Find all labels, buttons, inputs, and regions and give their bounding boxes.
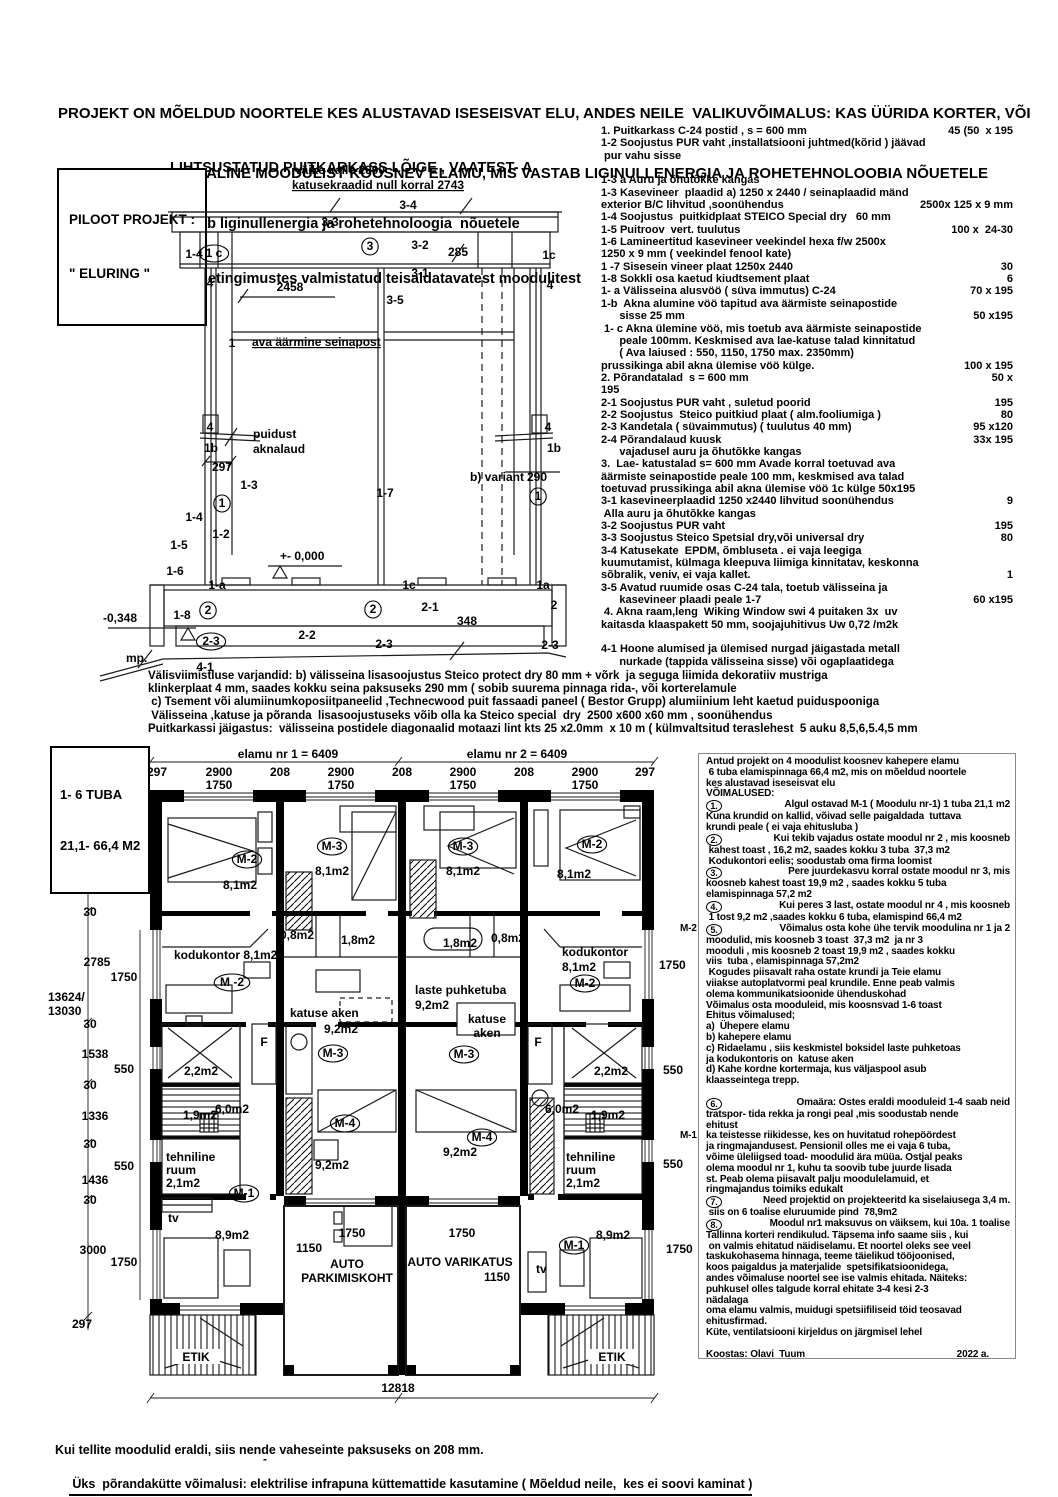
drawing-label: 4 <box>545 420 552 434</box>
drawing-label: väike kalle 2900 <box>295 163 385 177</box>
drawing-label: F <box>260 1035 267 1049</box>
text-line: vajadusel auru ja õhutõkke kangas <box>601 446 1013 458</box>
text-line: Koostas: Olavi Tuum2022 a. <box>706 1350 1010 1361</box>
drawing-label: AUTO VARIKATUS <box>407 1255 512 1269</box>
drawing-label: 1750 <box>449 1226 476 1240</box>
drawing-label: 1b <box>547 441 561 455</box>
drawing-label: M-3 <box>453 839 474 853</box>
drawing-label: 9,2m2 <box>324 1022 358 1036</box>
drawing-label: 290 <box>527 470 547 484</box>
text-line: 1-2 Soojustus PUR vaht ,installatsiooni … <box>601 137 1013 149</box>
text-line: 3-1 kasevineerplaadid 1250 x2440 lihvitu… <box>601 495 1013 507</box>
drawing-label: 2,1m2 <box>566 1176 600 1190</box>
drawing-label: laste puhketuba <box>415 983 507 997</box>
text-line: moodulid, mis koosneb 3 toast 37,3 m2 ja… <box>706 936 1010 947</box>
text-line: 2-4 Põrandalaud kuusk33x 195 <box>601 434 1013 446</box>
drawing-label: mp. <box>126 651 147 665</box>
drawing-label: 1 <box>535 489 542 503</box>
text-line: 3. Lae- katustalad s= 600 mm Avade korra… <box>601 458 1013 470</box>
drawing-label: 1750 <box>572 778 599 792</box>
drawing-label: 4 <box>547 278 554 292</box>
drawing-label: 1750 <box>111 970 138 984</box>
plan-title-box: 1- 6 TUBA 21,1- 66,4 M2 <box>50 746 150 894</box>
drawing-label: 2900 <box>572 765 599 779</box>
drawing-label: 3-2 <box>411 238 429 252</box>
drawing-label: 2-3 <box>375 637 393 651</box>
drawing-label: 297 <box>212 460 232 474</box>
drawing-label: 9,2m2 <box>315 1158 349 1172</box>
text-line: 2.Kui tekib vajadus ostate moodul nr 2 ,… <box>706 834 1010 846</box>
text-line: 1-b Akna alumine vöö tapitud ava äärmist… <box>601 298 1013 310</box>
text-line: 3-2 Soojustus PUR vaht195 <box>601 520 1013 532</box>
drawing-label: 30 <box>83 1137 97 1151</box>
drawing-label: 1c <box>402 578 416 592</box>
text-line: 1- a Välisseina alusvöö ( süva immutus) … <box>601 285 1013 297</box>
drawing-label: M-2 <box>237 852 258 866</box>
text-line: pur vahu sisse <box>601 150 1013 162</box>
text-line: 1-4 Soojustus puitkidplaat STEICO Specia… <box>601 211 1013 223</box>
drawing-label: 285 <box>448 245 468 259</box>
drawing-label: 6,0m2 <box>545 1102 579 1116</box>
text-line: toetuvad prussikinga abil akna ülemise v… <box>601 483 1013 495</box>
drawing-label: 1,9m2 <box>591 1108 625 1122</box>
drawing-label: +- 0,000 <box>280 549 325 563</box>
text-line: c) Tsement või alumiinumkoposiitpaneelid… <box>148 696 1038 709</box>
drawing-label: 3-4 <box>399 198 417 212</box>
project-sheet: PROJEKT ON MÕELDUD NOORTELE KES ALUSTAVA… <box>0 0 1058 1497</box>
drawing-label: 550 <box>663 1063 683 1077</box>
text-line: 6.Omaära: Ostes eraldi mooduleid 1-4 saa… <box>706 1098 1010 1110</box>
text-line: peale 100mm. Keskmised ava lae-katuse ta… <box>601 335 1013 347</box>
options-column: Antud projekt on 4 moodulist koosnev kah… <box>698 753 1016 1359</box>
cross-section-drawing: väike kalle 2900katusekraadid null korra… <box>95 160 570 675</box>
drawing-label: 3000 <box>80 1243 107 1257</box>
drawing-label: 1436 <box>82 1173 109 1187</box>
text-line: sõbralik, veniv, ei vaja kallet.1 <box>601 569 1013 581</box>
drawing-label: 2 <box>370 602 377 616</box>
footer-line-1: Kui tellite moodulid eraldi, siis nende … <box>55 1442 752 1459</box>
text-line: kaitasda klaaspakett 50 mm, soojajuhitiv… <box>601 619 1013 631</box>
drawing-label: 8,9m2 <box>596 1228 630 1242</box>
footer: Kui tellite moodulid eraldi, siis nende … <box>55 1408 752 1497</box>
drawing-label: 8,1m2 <box>562 960 596 974</box>
drawing-label: kodukontor <box>562 945 628 959</box>
text-line <box>601 631 1013 643</box>
drawing-label: 1-8 <box>173 608 191 622</box>
drawing-label: 2 <box>205 603 212 617</box>
drawing-label: 30 <box>83 905 97 919</box>
drawing-label: 3-3 <box>321 215 339 229</box>
text-line: 1-8 Sokkli osa kaetud kiudtsement plaat6 <box>601 273 1013 285</box>
text-line: äärmiste seinapostide peale 100 mm, kesk… <box>601 471 1013 483</box>
drawing-label: 1-4 <box>185 510 203 524</box>
drawing-label: 1750 <box>206 778 233 792</box>
drawing-label: aken <box>473 1026 500 1040</box>
drawing-label: 1 <box>219 496 226 510</box>
text-line: 3-3 Soojustus Steico Spetsial dry,või un… <box>601 532 1013 544</box>
drawing-label: M-3 <box>323 1046 344 1060</box>
footer-mark: - <box>263 1452 267 1466</box>
drawing-label: 13624/ <box>48 990 85 1004</box>
drawing-label: 2 <box>551 598 558 612</box>
drawing-label: 208 <box>514 765 534 779</box>
drawing-label: 30 <box>83 1193 97 1207</box>
drawing-label: 4 <box>207 276 214 290</box>
header-line-1: PROJEKT ON MÕELDUD NOORTELE KES ALUSTAVA… <box>58 104 1018 124</box>
text-line: 1 -7 Sisesein vineer plaat 1250x 244030 <box>601 261 1013 273</box>
drawing-label: 4 <box>207 420 214 434</box>
drawing-label: 1336 <box>82 1109 109 1123</box>
drawing-label: 1150 <box>484 1270 510 1284</box>
drawing-label: aknalaud <box>253 442 305 456</box>
drawing-label: 550 <box>663 1157 683 1171</box>
text-line: tratspor- tida rekka ja rongi peal ,mis … <box>706 1110 1010 1121</box>
drawing-label: 1c <box>542 248 556 262</box>
drawing-label: 30 <box>83 1078 97 1092</box>
drawing-label: M-2 <box>575 976 596 990</box>
text-line: 1250 x 9 mm ( veekindel fenool kate) <box>601 248 1013 260</box>
text-line: olema kommunikatsioonide ühenduskohad <box>706 990 1010 1001</box>
text-line: 2-1 Soojustus PUR vaht , suletud poorid1… <box>601 397 1013 409</box>
drawing-label: tv <box>168 1211 179 1225</box>
drawing-label: 1750 <box>328 778 355 792</box>
drawing-label: 1750 <box>339 1226 366 1240</box>
text-line: 3-4 Katusekate EPDM, õmbluseta . ei vaja… <box>601 545 1013 557</box>
drawing-label: kodukontor 8,1m2 <box>174 948 278 962</box>
drawing-label: 1150 <box>296 1241 322 1255</box>
drawing-label: 2,2m2 <box>184 1064 218 1078</box>
drawing-label: katuse <box>468 1012 506 1026</box>
drawing-label: 208 <box>270 765 290 779</box>
drawing-label: 8,9m2 <box>215 1228 249 1242</box>
drawing-label: 208 <box>392 765 412 779</box>
drawing-label: 30 <box>83 1017 97 1031</box>
drawing-label: 297 <box>635 765 655 779</box>
text-line: puhkusel olles talgude korral ehitate 3-… <box>706 1285 1010 1296</box>
drawing-label: 2900 <box>450 765 477 779</box>
drawing-label: 1-5 <box>170 538 188 552</box>
drawing-label: M-1 <box>564 1238 585 1252</box>
drawing-label: tv <box>536 1262 547 1276</box>
footer-line-2: Üks põrandakütte võimalusi: elektrilise … <box>69 1476 753 1496</box>
drawing-label: elamu nr 2 = 6409 <box>467 747 568 761</box>
drawing-label: 2900 <box>206 765 233 779</box>
drawing-label: 1-2 <box>212 527 230 541</box>
text-line: Välisseina ,katuse ja põranda lisasoojus… <box>148 710 1038 723</box>
drawing-label: 1750 <box>666 1242 693 1256</box>
plan-title-1: 1- 6 TUBA <box>60 786 140 803</box>
drawing-label: 2-2 <box>298 628 316 642</box>
text-line: 1. Puitkarkass C-24 postid , s = 600 mm4… <box>601 125 1013 137</box>
text-line: klinkerplaat 4 mm, saades kokku seina pa… <box>148 683 1038 696</box>
drawing-label: 1,8m2 <box>443 936 477 950</box>
text-line: 2-3 Kandetala ( süvaimmutus) ( tuulutus … <box>601 421 1013 433</box>
drawing-label: 348 <box>457 614 477 628</box>
text-line <box>601 162 1013 174</box>
drawing-label: 1750 <box>450 778 477 792</box>
drawing-label: ruum <box>566 1163 596 1177</box>
text-line: 1-3 Kasevineer plaadid a) 1250 x 2440 / … <box>601 187 1013 199</box>
drawing-label: 1,8m2 <box>341 933 375 947</box>
drawing-label: ruum <box>166 1163 196 1177</box>
drawing-label: 1750 <box>111 1255 138 1269</box>
drawing-label: 6,0m2 <box>215 1102 249 1116</box>
text-line: 3-5 Avatud ruumide osas C-24 tala, toetu… <box>601 582 1013 594</box>
drawing-label: M-2 <box>582 837 603 851</box>
drawing-label: 550 <box>114 1159 134 1173</box>
drawing-label: 2,1m2 <box>166 1176 200 1190</box>
text-line: prussikinga abil akna ülemise vöö külge.… <box>601 360 1013 372</box>
drawing-label: 8,1m2 <box>446 864 480 878</box>
text-line: c) Ridaelamu , siis keskmistel boksidel … <box>706 1044 1010 1055</box>
drawing-label: 3 <box>367 239 374 253</box>
text-line: 1- c Akna ülemine vöö, mis toetub ava ää… <box>601 323 1013 335</box>
drawing-label: puidust <box>253 427 296 441</box>
drawing-label: 2785 <box>84 955 111 969</box>
text-line: Küte, ventilatsiooni kirjeldus on järgmi… <box>706 1328 1010 1339</box>
text-line: olema moodul nr 1, kuhu ta soovib tube j… <box>706 1164 1010 1175</box>
drawing-label: 12818 <box>381 1381 415 1395</box>
text-line: 1-5 Puitroov vert. tuulutus100 x 24-30 <box>601 224 1013 236</box>
text-line: 195 <box>601 384 1013 396</box>
drawing-label: 1-4 <box>185 247 203 261</box>
text-line: 6 tuba elamispinnaga 66,4 m2, mis on mõe… <box>706 768 1010 779</box>
drawing-label: 297 <box>72 1317 92 1331</box>
finish-notes: Välisviimistluse varjandid: b) välissein… <box>148 670 1038 736</box>
drawing-label: F <box>534 1035 541 1049</box>
text-line: exterior B/C lihvitud ,soonühendus2500x … <box>601 199 1013 211</box>
text-line: nurkade (tappida välisseina sisse) või o… <box>601 656 1013 668</box>
drawing-label: M-4 <box>335 1116 356 1130</box>
drawing-label: 2-1 <box>421 600 439 614</box>
plan-title-2: 21,1- 66,4 M2 <box>60 837 140 854</box>
drawing-label: 1 c <box>206 246 223 260</box>
drawing-label: 13030 <box>48 1004 82 1018</box>
text-line: 2. Põrandatalad s = 600 mm50 x <box>601 372 1013 384</box>
drawing-label: elamu nr 1 = 6409 <box>238 747 339 761</box>
drawing-label: 1a <box>536 578 550 592</box>
drawing-label: 2-3 <box>202 634 220 648</box>
drawing-label: tehniline <box>166 1150 216 1164</box>
spec-legend: 1. Puitkarkass C-24 postid , s = 600 mm4… <box>601 125 1013 668</box>
text-line: Puitkarkassi jäigastus: välisseina posti… <box>148 723 1038 736</box>
text-line: Välisviimistluse varjandid: b) välissein… <box>148 670 1038 683</box>
drawing-label: 1-a <box>208 578 226 592</box>
text-line: 2-2 Soojustus Steico puitkiud plaat ( al… <box>601 409 1013 421</box>
text-line: 1-3 a Auru ja õhutõkke kangas <box>601 174 1013 186</box>
text-line: kasevineer plaadi peale 1-760 x195 <box>601 594 1013 606</box>
drawing-label: M-4 <box>472 1130 493 1144</box>
drawing-label: tehniline <box>566 1150 616 1164</box>
text-line: kahest toast , 16,2 m2, saades kokku 3 t… <box>706 846 1010 857</box>
drawing-label: -0,348 <box>103 611 137 625</box>
drawing-label: ETIK <box>598 1350 626 1364</box>
drawing-label: 2,2m2 <box>594 1064 628 1078</box>
drawing-label: M -2 <box>220 975 244 989</box>
drawing-label: M-3 <box>454 1047 475 1061</box>
drawing-label: b) variant <box>470 470 524 484</box>
text-line: 1-6 Lamineertitud kasevineer veekindel h… <box>601 236 1013 248</box>
drawing-label: 1750 <box>659 958 686 972</box>
drawing-label: 1538 <box>82 1047 109 1061</box>
drawing-label: 2-3 <box>541 638 559 652</box>
drawing-label: 1-6 <box>166 564 184 578</box>
text-line: 4. Akna raam,leng Wiking Window swi 4 pu… <box>601 606 1013 618</box>
text-line: sisse 25 mm50 x195 <box>601 310 1013 322</box>
drawing-label: 9,2m2 <box>415 998 449 1012</box>
drawing-label: 2900 <box>328 765 355 779</box>
drawing-label: ETIK <box>182 1350 210 1364</box>
drawing-label: AUTO <box>330 1257 364 1271</box>
drawing-label: 1 <box>229 336 236 350</box>
drawing-label: katusekraadid null korral 2743 <box>292 178 464 192</box>
drawing-label: 9,2m2 <box>443 1145 477 1159</box>
drawing-label: 2458 <box>277 280 304 294</box>
text-line: kuumutamist, külmaga kleepuva liimiga ki… <box>601 557 1013 569</box>
text-line: klaasseintega trepp. <box>706 1076 1010 1087</box>
drawing-label: 3-5 <box>386 293 404 307</box>
drawing-label: M-3 <box>322 839 343 853</box>
drawing-label: 0,8m2 <box>280 928 314 942</box>
drawing-label: 1,9m2 <box>183 1108 217 1122</box>
drawing-label: 0,8m2 <box>491 931 525 945</box>
drawing-label: 1-7 <box>376 486 394 500</box>
text-line: ( Ava laiused : 550, 1150, 1750 max. 235… <box>601 347 1013 359</box>
drawing-label: 8,1m2 <box>315 864 349 878</box>
drawing-label: katuse aken <box>290 1006 359 1020</box>
drawing-label: 8,1m2 <box>557 867 591 881</box>
drawing-label: 550 <box>114 1062 134 1076</box>
drawing-label: 1b <box>204 441 218 455</box>
text-line: Alla auru ja õhutõkke kangas <box>601 508 1013 520</box>
text-line: 4-1 Hoone alumised ja ülemised nurgad jä… <box>601 643 1013 655</box>
drawing-label: 1-3 <box>240 478 258 492</box>
text-line: M-25.Võimalus osta kohe ühe tervik moodu… <box>706 924 1010 936</box>
drawing-label: ava äärmine seinapost <box>252 335 381 349</box>
drawing-label: PARKIMISKOHT <box>301 1271 393 1285</box>
drawing-label: M-1 <box>234 1186 255 1200</box>
drawing-label: 3-1 <box>411 266 429 280</box>
drawing-label: 8,1m2 <box>223 878 257 892</box>
